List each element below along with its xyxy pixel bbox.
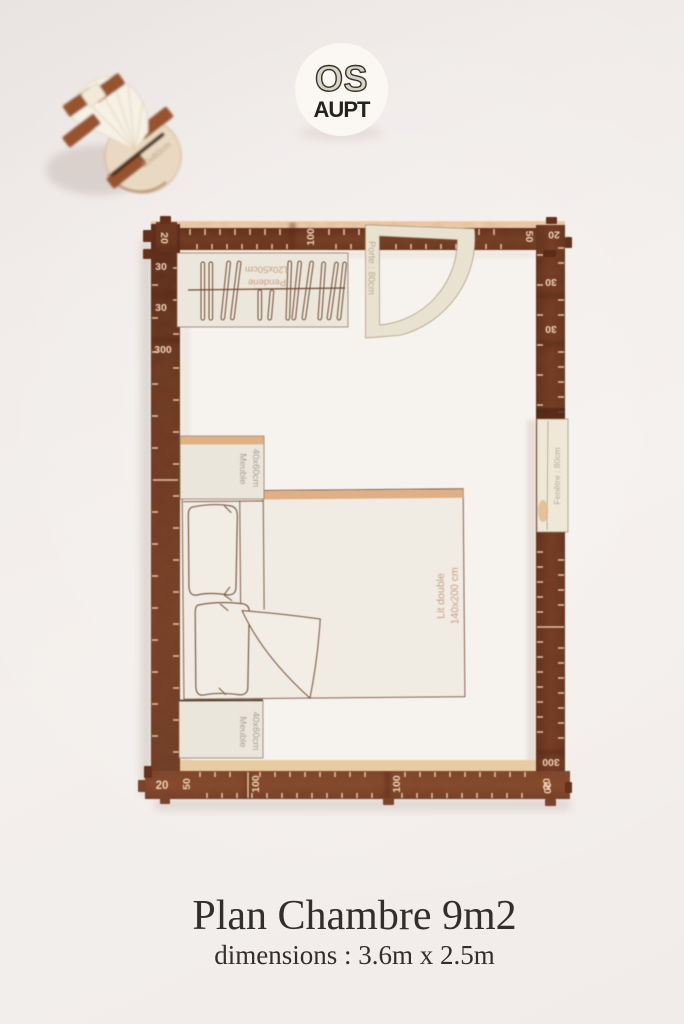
svg-text:Porte : 80cm: Porte : 80cm xyxy=(365,241,376,295)
svg-text:20: 20 xyxy=(158,232,170,244)
svg-text:100: 100 xyxy=(305,228,317,246)
svg-text:40x60cm: 40x60cm xyxy=(250,449,261,488)
svg-text:20: 20 xyxy=(156,780,169,792)
svg-text:30: 30 xyxy=(155,261,167,273)
svg-text:300: 300 xyxy=(542,756,560,768)
svg-text:30: 30 xyxy=(545,276,557,288)
svg-text:100: 100 xyxy=(391,775,403,793)
svg-text:120x50cm: 120x50cm xyxy=(245,264,289,275)
svg-text:50: 50 xyxy=(181,778,193,790)
svg-text:40x60cm: 40x60cm xyxy=(250,712,261,751)
svg-text:140x200 cm: 140x200 cm xyxy=(449,567,462,625)
svg-text:300: 300 xyxy=(154,344,172,356)
svg-text:Meuble: Meuble xyxy=(237,453,248,484)
svg-text:100: 100 xyxy=(250,775,262,793)
svg-text:Lit double: Lit double xyxy=(435,573,447,619)
svg-text:30: 30 xyxy=(155,302,167,314)
svg-text:20: 20 xyxy=(548,229,560,241)
svg-text:20: 20 xyxy=(541,778,553,790)
svg-text:30: 30 xyxy=(545,323,557,335)
svg-text:Fenêtre : 80cm: Fenêtre : 80cm xyxy=(552,447,562,504)
svg-text:50: 50 xyxy=(523,231,535,243)
svg-text:Penderie: Penderie xyxy=(248,277,286,288)
svg-text:Meuble: Meuble xyxy=(237,716,248,747)
